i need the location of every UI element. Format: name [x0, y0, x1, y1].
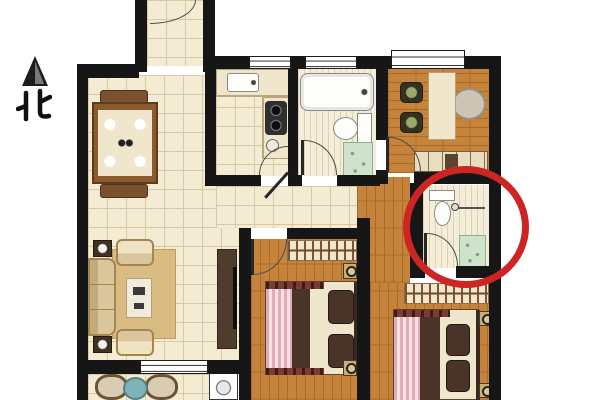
kitchen-stove [265, 101, 287, 135]
nightstand-middle-top [343, 263, 357, 279]
balcony-table [123, 377, 148, 400]
lamp-knob [346, 266, 357, 277]
armchair-top [116, 239, 154, 266]
wall [357, 218, 370, 400]
bed-striped-throw [266, 289, 292, 368]
study-desk [428, 72, 456, 140]
wall [287, 228, 357, 239]
wall [205, 175, 261, 186]
wall [135, 0, 147, 72]
wall [205, 64, 216, 186]
north-label-glyph [16, 88, 52, 124]
dining-table-top [98, 110, 152, 176]
lamp-knob [346, 363, 357, 374]
wall [88, 360, 142, 374]
bed-striped-throw [394, 317, 420, 400]
bed-fringe-top [394, 310, 450, 317]
bed-master [393, 309, 479, 400]
shower-shared [343, 142, 373, 179]
wall [337, 175, 380, 186]
bathtub [300, 73, 374, 111]
bed-fringe-top [266, 282, 324, 289]
study-chair-1 [400, 82, 423, 103]
bed-dark-band [292, 289, 310, 368]
north-arrow-icon [19, 54, 51, 88]
armchair-bottom [116, 329, 154, 356]
coffee-table [126, 278, 152, 318]
bathroom-window [305, 56, 357, 69]
balcony-window [140, 360, 208, 374]
kitchen-sink [227, 73, 259, 92]
bed-pillow-2 [446, 360, 470, 392]
bed-dark-band [420, 317, 440, 400]
toilet-bowl-shared [333, 117, 358, 140]
balcony-chair-right [145, 374, 178, 400]
dining-chairs-bottom [100, 184, 148, 198]
lounge-chair-study [452, 88, 486, 120]
floor-plan-image [0, 0, 600, 400]
wall [376, 170, 388, 184]
bed-fringe-bottom [266, 368, 324, 375]
wall [288, 175, 302, 186]
bed-pillow-1 [446, 324, 470, 356]
study-window [391, 50, 465, 69]
toilet-tank-shared [357, 113, 372, 143]
wall [205, 360, 241, 374]
bed-pillow-1 [328, 290, 354, 324]
kitchen-window [249, 56, 291, 69]
highlight-circle [403, 166, 529, 288]
side-table-lamp-bottom [93, 336, 112, 353]
wall [239, 228, 251, 400]
side-table-lamp-top [93, 240, 112, 257]
hallway-floor [216, 186, 357, 228]
washing-machine [209, 373, 238, 400]
wall-tv [233, 267, 237, 329]
north-compass [16, 54, 56, 132]
wall [288, 64, 298, 186]
wall [376, 56, 388, 140]
sofa [88, 258, 116, 336]
nightstand-middle-bottom [343, 360, 357, 376]
wardrobe-middle-bedroom [287, 240, 357, 261]
study-chair-2 [400, 112, 423, 133]
wall [77, 64, 88, 400]
